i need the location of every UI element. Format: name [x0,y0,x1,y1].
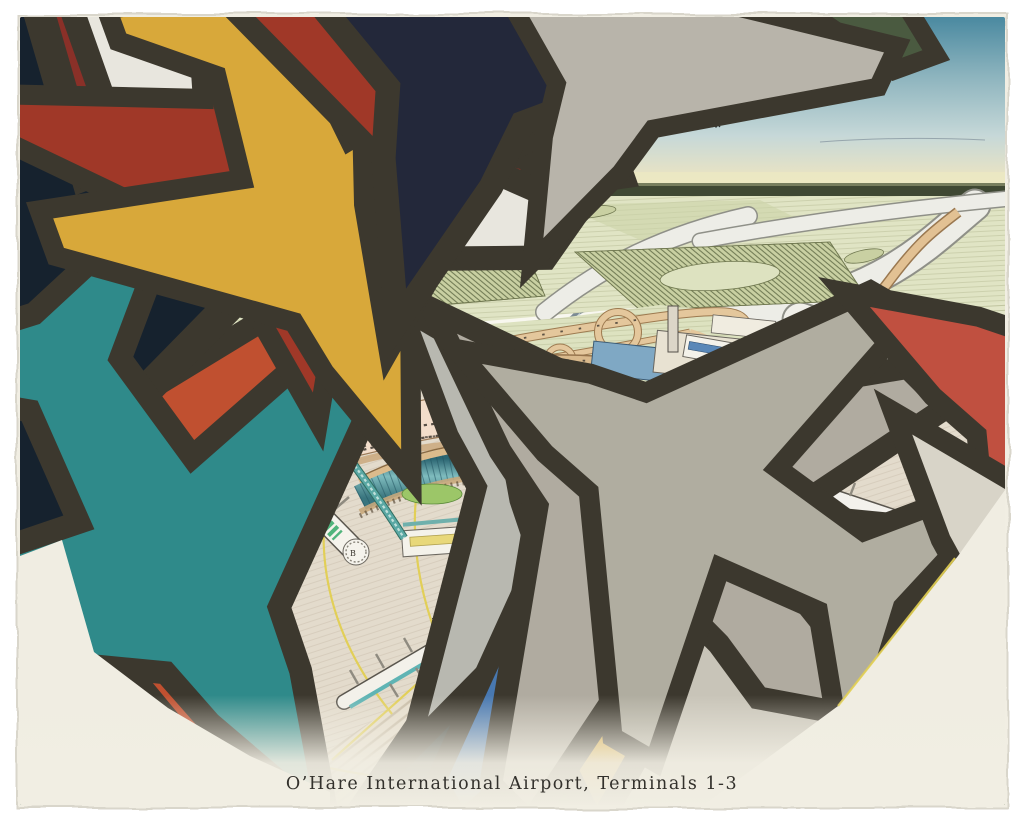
artwork: B C [0,0,1024,819]
ohare-illustration: B C [0,0,1024,819]
print-caption: O’Hare International Airport, Terminals … [286,774,738,794]
art-print-page: B C [0,0,1024,819]
concourse-b-label: B [350,549,356,558]
